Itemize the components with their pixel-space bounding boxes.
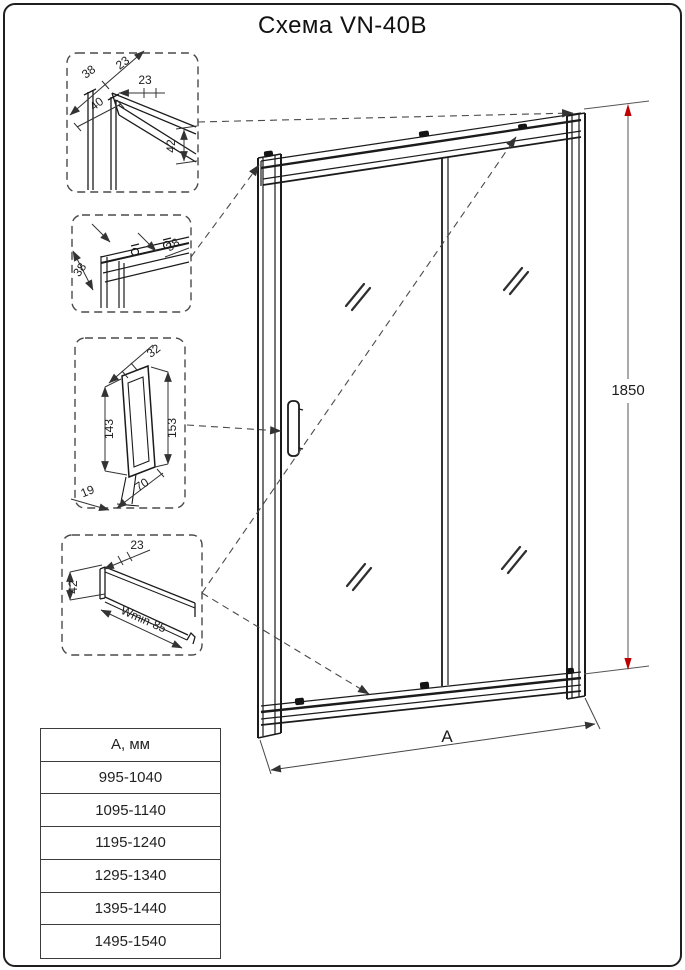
right-wall-profile <box>567 113 585 699</box>
door-handle <box>288 401 303 456</box>
roller-brackets <box>264 123 575 705</box>
size-table-row: 1295-1340 <box>41 860 220 893</box>
dim-label-23a: 23 <box>113 53 132 72</box>
schematic-page: Схема VN-40B <box>3 3 682 967</box>
detail-box-handle: 32 143 153 19 70 <box>71 338 185 510</box>
dim-label-rail-38a: 38 <box>70 260 89 279</box>
bottom-rail <box>261 672 581 725</box>
width-dimension: А <box>260 698 600 774</box>
red-arrow-up <box>624 104 631 116</box>
dim-label-153: 153 <box>165 418 179 438</box>
left-wall-profile <box>258 154 281 738</box>
size-table-row: 1095-1140 <box>41 794 220 827</box>
height-dim-label: 1850 <box>611 382 644 399</box>
detail-box-top-corner: 38 23 23 40 42 <box>67 51 198 192</box>
dim-label-38: 38 <box>79 62 98 81</box>
size-table: А, мм 995-1040 1095-1140 1195-1240 1295-… <box>40 728 221 959</box>
dim-label-32: 32 <box>144 341 163 360</box>
glass-hatch-marks <box>346 268 528 590</box>
dim-label-143: 143 <box>102 419 116 439</box>
dim-label-40: 40 <box>87 94 106 113</box>
size-table-row: 1195-1240 <box>41 827 220 860</box>
dim-label-bottom-23: 23 <box>130 538 144 552</box>
size-table-header: А, мм <box>41 729 220 762</box>
size-table-row: 1495-1540 <box>41 925 220 958</box>
main-door-frame <box>258 113 585 738</box>
detail-box-bottom-rail: 23 42 Wmin-85 <box>62 535 202 655</box>
detail-box-top-rail: 38 38 <box>70 215 191 312</box>
dim-label-42: 42 <box>164 139 178 153</box>
height-dimension: 1850 <box>584 101 649 674</box>
dim-label-19: 19 <box>79 482 97 500</box>
size-table-row: 1395-1440 <box>41 893 220 926</box>
top-rail <box>261 113 581 186</box>
width-dim-label: А <box>441 727 453 746</box>
size-table-row: 995-1040 <box>41 762 220 795</box>
detail-leader-lines <box>187 113 573 694</box>
dim-label-23b: 23 <box>138 73 152 87</box>
dim-label-wmin: Wmin-85 <box>119 603 169 635</box>
dim-label-bottom-42: 42 <box>66 580 80 594</box>
